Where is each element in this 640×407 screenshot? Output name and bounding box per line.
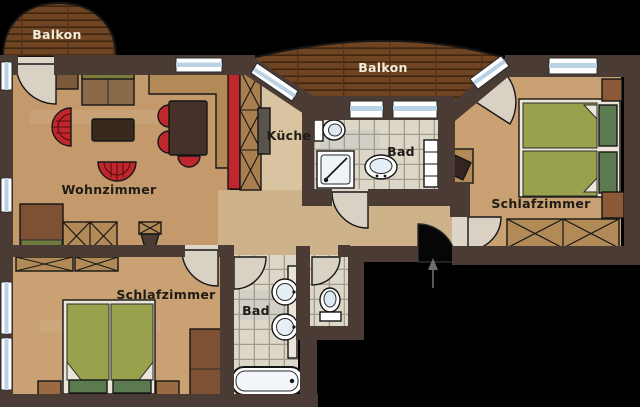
- room-label-living-room: Wohnzimmer: [62, 182, 158, 197]
- toilet: [320, 288, 341, 321]
- window: [1, 338, 12, 390]
- window: [176, 58, 222, 72]
- sink: [272, 314, 298, 340]
- nightstand: [602, 79, 622, 101]
- cabinet: [54, 74, 78, 89]
- wc-fixtures: [320, 288, 341, 321]
- window: [1, 282, 12, 334]
- room-label-bath-bottom: Bad: [242, 303, 270, 318]
- room-label-kitchen: Küche: [267, 128, 312, 143]
- dining-table: [169, 101, 207, 155]
- coffee-table: [92, 119, 134, 141]
- kitchen-counter-red: [228, 73, 240, 189]
- room-label-balcony-top: Balkon: [358, 60, 408, 75]
- wardrobe-x: [507, 219, 619, 248]
- window: [1, 178, 12, 212]
- sofa: [82, 72, 134, 105]
- window: [549, 58, 597, 74]
- sink: [272, 279, 298, 305]
- toilet: [314, 120, 345, 141]
- wardrobe: [190, 329, 223, 395]
- window: [1, 62, 12, 90]
- floorplan-canvas: Balkon Balkon Küche Bad Wohnzimmer Schla…: [0, 0, 640, 407]
- room-label-bedroom-left: Schlafzimmer: [116, 287, 216, 302]
- nightstand: [602, 192, 624, 218]
- wardrobe-x: [16, 257, 118, 271]
- room-label-bath-top: Bad: [387, 144, 415, 159]
- double-bed: [63, 300, 155, 394]
- window: [350, 101, 383, 118]
- shelf: [424, 140, 438, 187]
- double-bed: [519, 99, 620, 197]
- shower: [317, 151, 354, 188]
- bathtub: [232, 367, 303, 395]
- window: [393, 101, 437, 118]
- room-label-balcony-left: Balkon: [32, 27, 82, 42]
- room-label-bedroom-right: Schlafzimmer: [491, 196, 591, 211]
- sideboard: [20, 204, 63, 248]
